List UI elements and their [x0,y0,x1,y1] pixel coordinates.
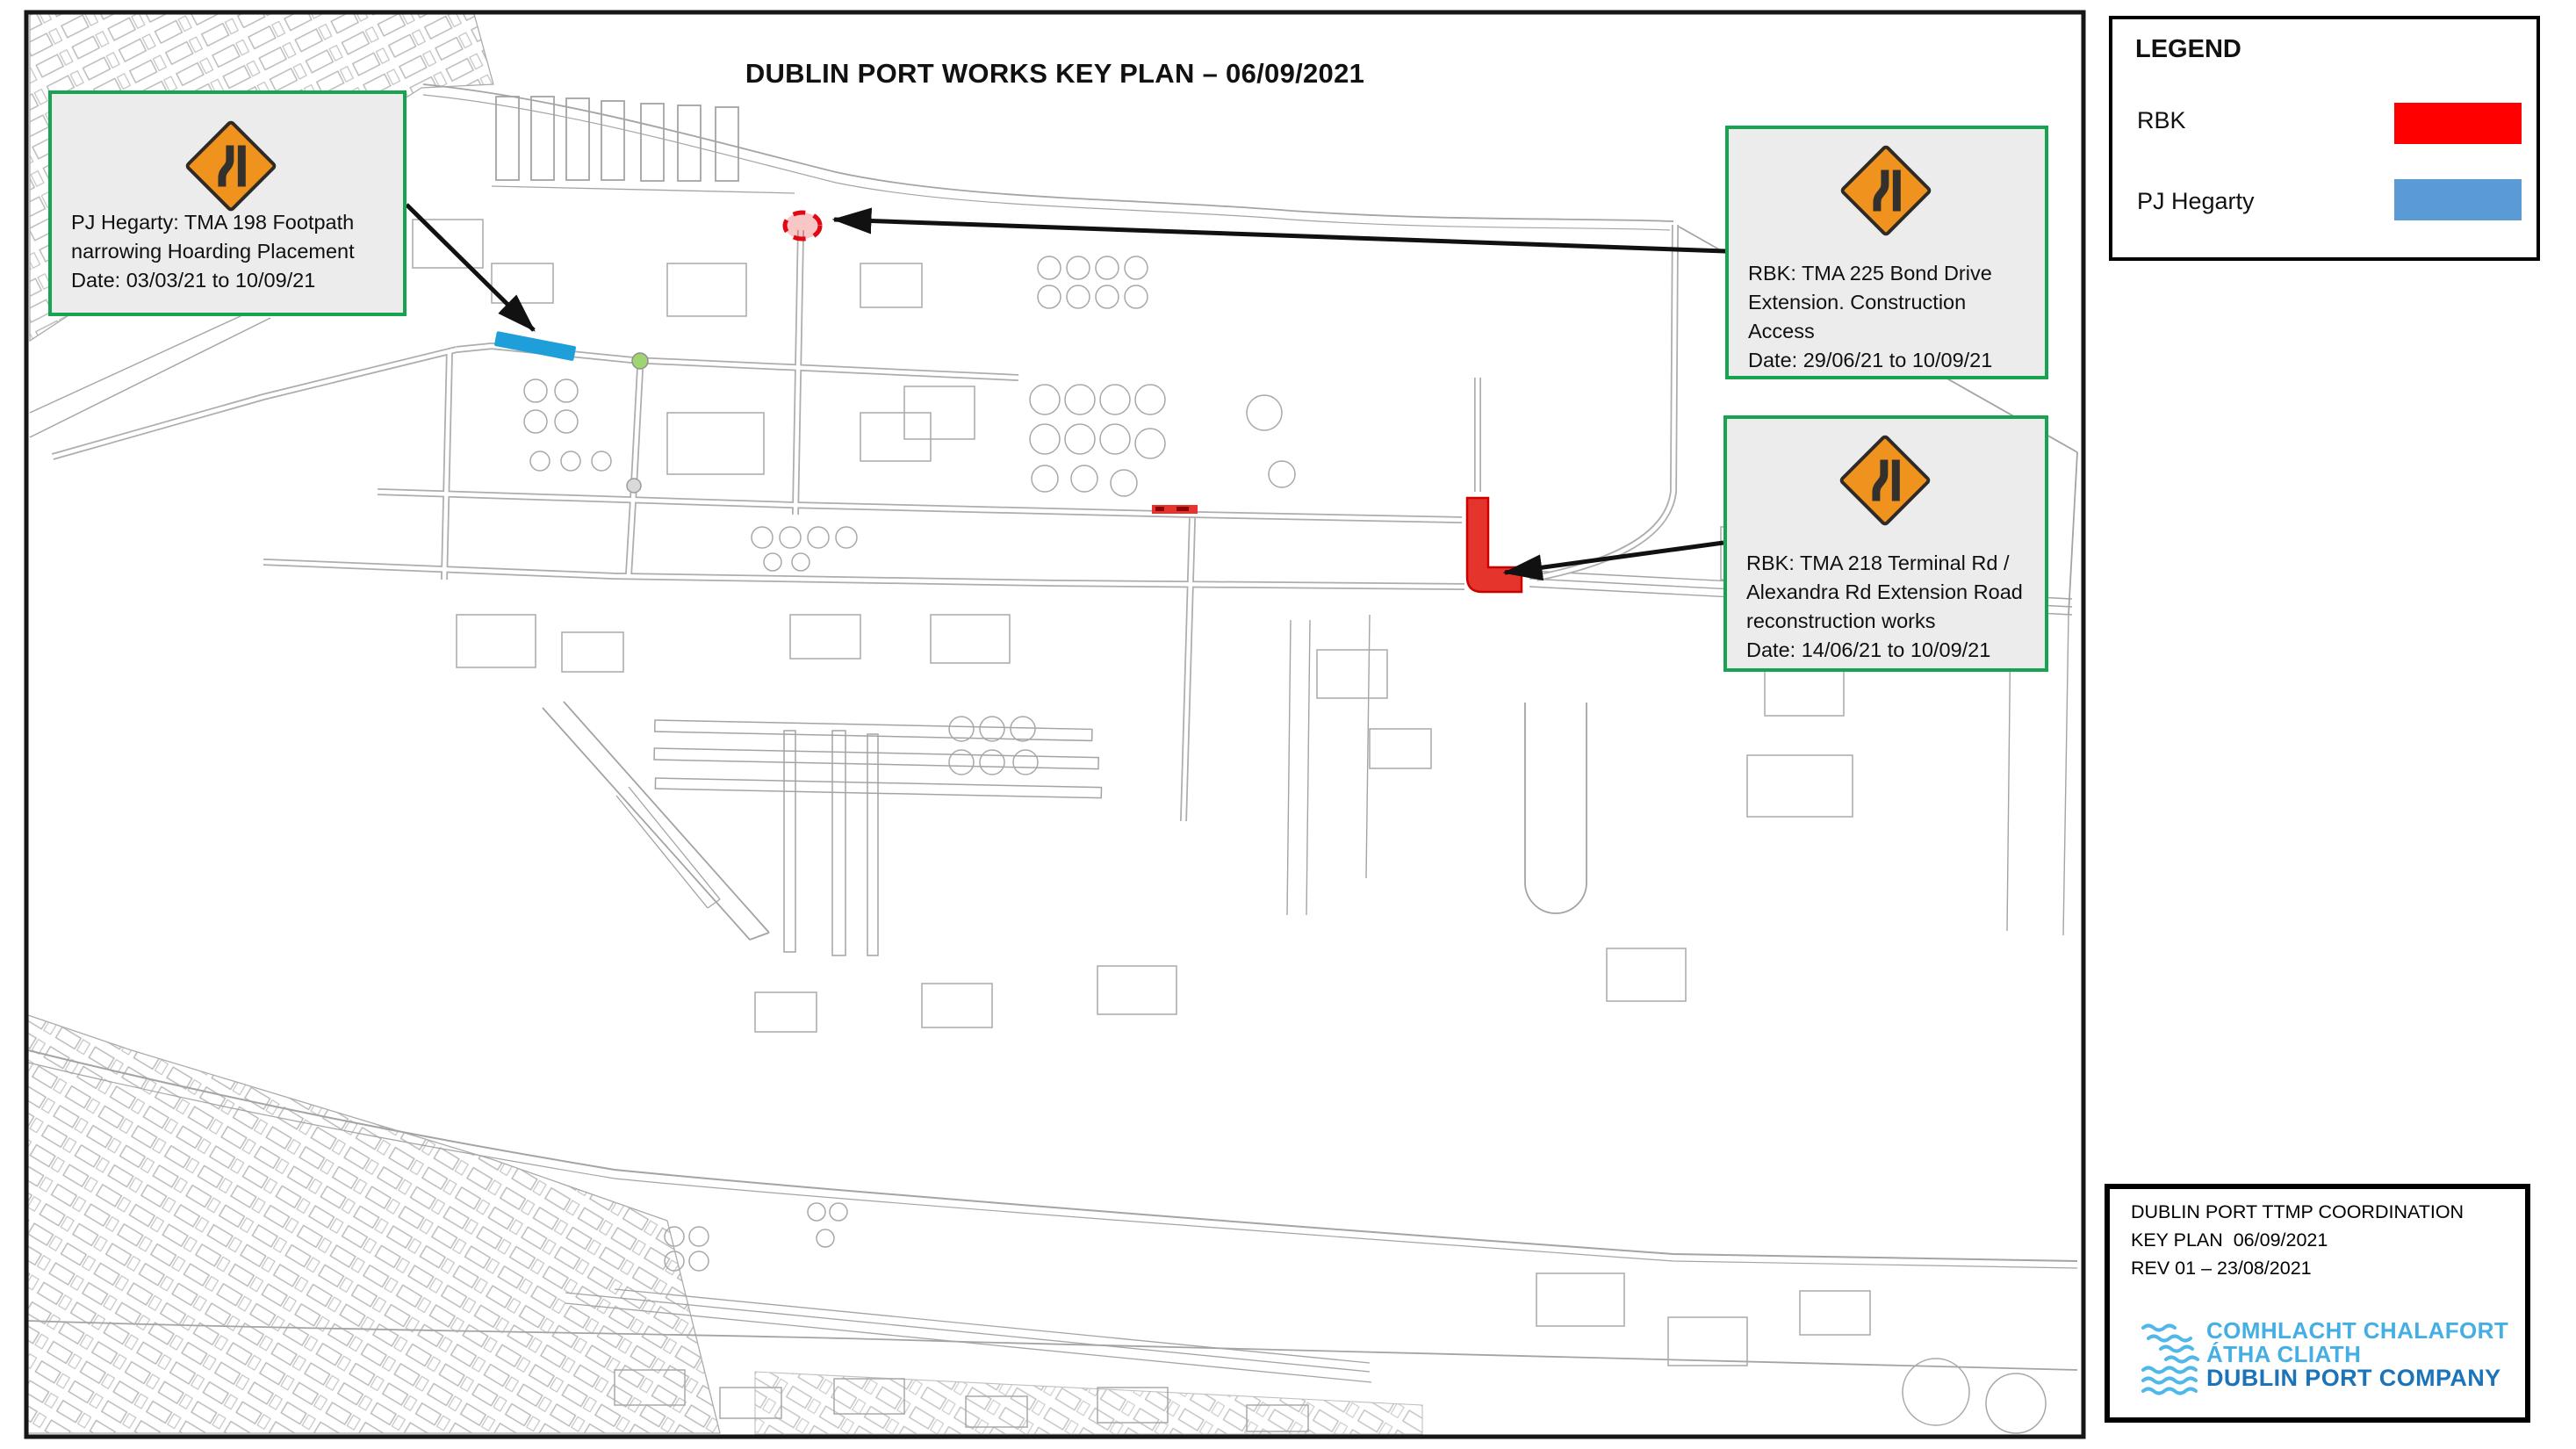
legend-label-pj-hegarty: PJ Hegarty [2137,188,2255,215]
tolka-quay-rd-segment [1152,505,1198,514]
legend-swatch-pj-hegarty [2394,179,2522,220]
title-block-line-2: KEY PLAN 06/09/2021 [2131,1229,2328,1251]
works-markers [494,213,1522,592]
arrow-tma218 [1505,543,1723,573]
legend-title: LEGEND [2135,35,2241,64]
roundabout-green [632,353,648,369]
wave-d-logo-icon [2131,1321,2201,1406]
dublin-port-company-logo: COMHLACHT CHALAFORT ÁTHA CLIATH DUBLIN P… [2126,1317,2512,1414]
roundabout-gray [627,479,641,493]
bond-drive-extension-zone [785,213,820,239]
road-narrows-sign-icon [182,117,280,215]
legend-label-rbk: RBK [2137,107,2186,134]
road-narrows-sign-icon [1837,141,1935,240]
callout-tma-225: RBK: TMA 225 Bond Drive Extension. Const… [1725,126,2048,379]
logo-text-irish-2: ÁTHA CLIATH [2206,1343,2508,1366]
logo-text-irish-1: COMHLACHT CHALAFORT [2206,1319,2508,1343]
page-title: DUBLIN PORT WORKS KEY PLAN – 06/09/2021 [25,58,2085,90]
page: DUBLIN PORT WORKS KEY PLAN – 06/09/2021 … [0,0,2576,1449]
road-narrows-sign-icon [1836,431,1934,530]
callout-text: RBK: TMA 218 Terminal Rd / Alexandra Rd … [1746,549,2038,665]
legend-swatch-rbk [2394,103,2522,144]
pj-hegarty-footpath-zone [494,331,577,361]
callout-text: PJ Hegarty: TMA 198 Footpath narrowing H… [71,208,396,295]
callout-tma-218: RBK: TMA 218 Terminal Rd / Alexandra Rd … [1723,415,2048,672]
arrow-tma225 [834,220,1725,251]
title-block-line-3: REV 01 – 23/08/2021 [2131,1258,2312,1280]
callout-arrows [407,205,1725,573]
legend: LEGEND RBK PJ Hegarty [2109,16,2540,261]
title-block: DUBLIN PORT TTMP COORDINATION KEY PLAN 0… [2105,1184,2530,1423]
callout-text: RBK: TMA 225 Bond Drive Extension. Const… [1748,259,2038,375]
logo-text-english: DUBLIN PORT COMPANY [2206,1366,2508,1390]
title-block-line-1: DUBLIN PORT TTMP COORDINATION [2131,1201,2464,1223]
callout-tma-198: PJ Hegarty: TMA 198 Footpath narrowing H… [48,90,407,316]
terminal-rd-works-zone [1467,498,1522,592]
